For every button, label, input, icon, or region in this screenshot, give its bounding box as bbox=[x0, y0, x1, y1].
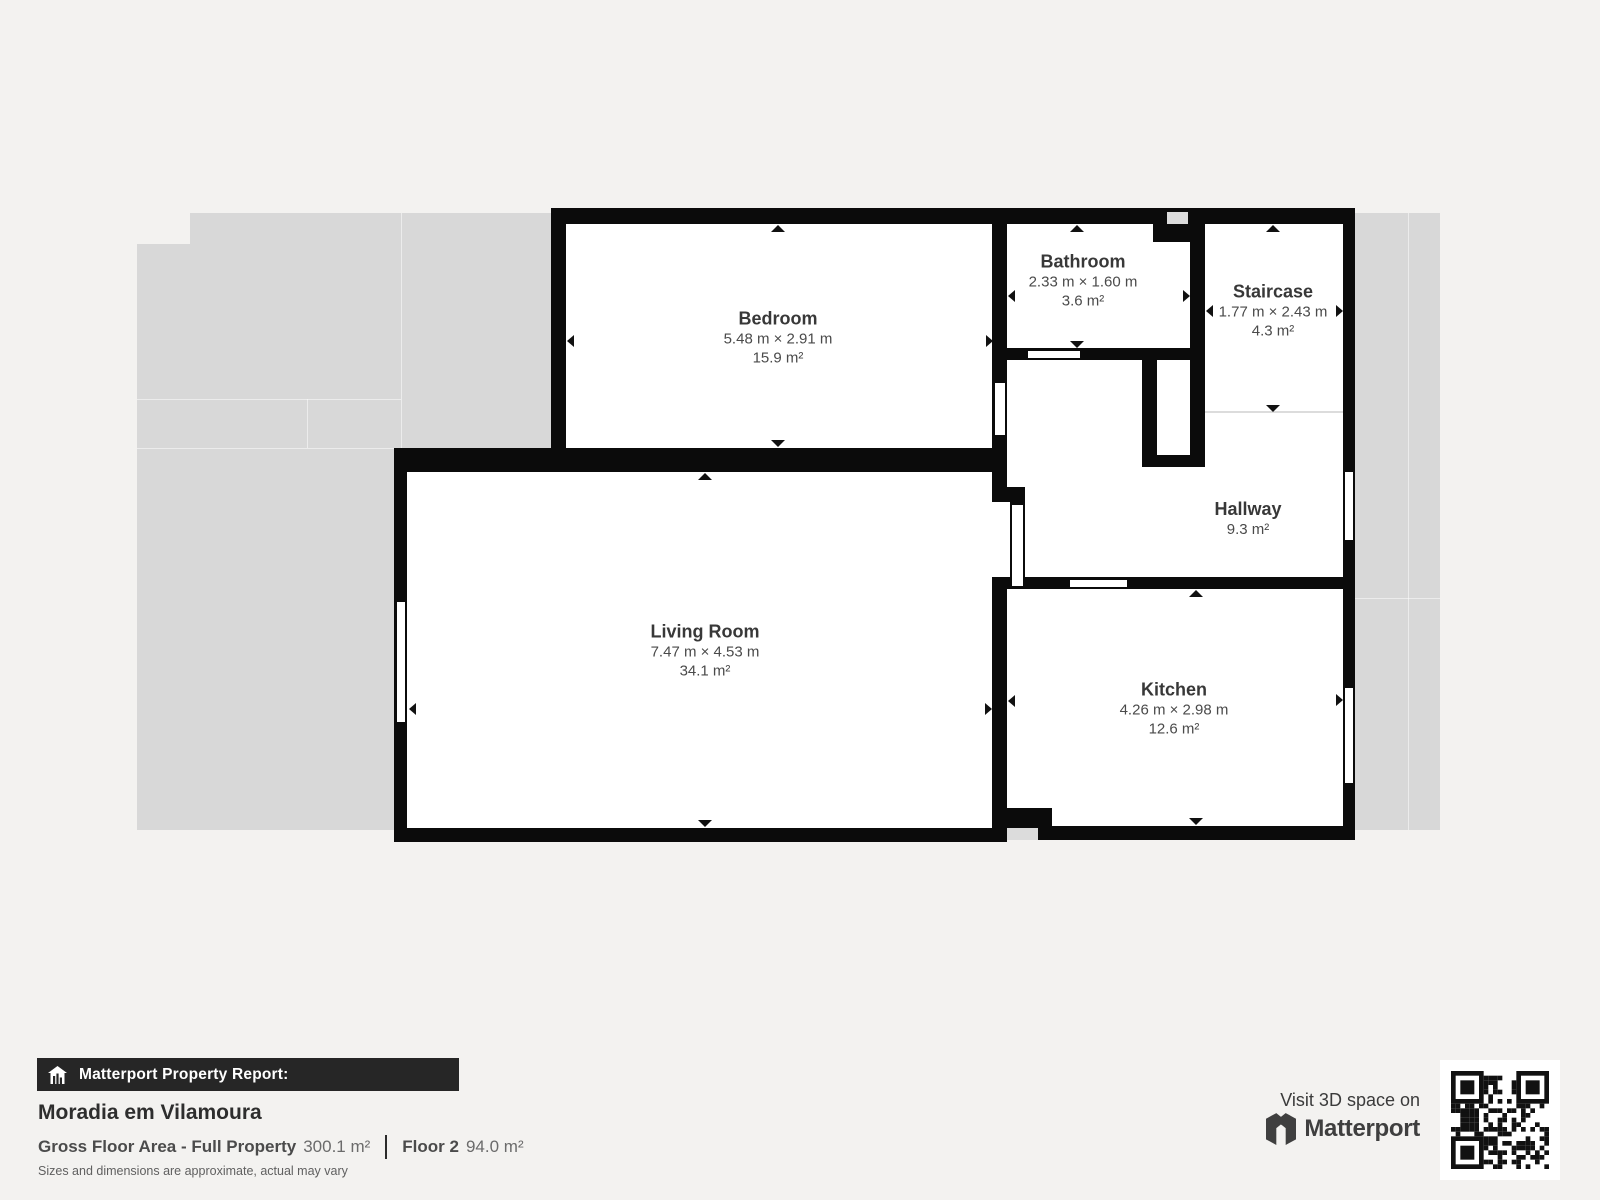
floor-area-value: 94.0 m² bbox=[466, 1137, 524, 1157]
dimension-arrow bbox=[1206, 305, 1213, 317]
wall-segment bbox=[992, 577, 1007, 842]
room-name: Bedroom bbox=[724, 309, 833, 330]
room-name: Living Room bbox=[651, 622, 760, 643]
gross-floor-area-label: Gross Floor Area - Full Property bbox=[38, 1137, 296, 1157]
wall-segment bbox=[992, 577, 1355, 589]
dimension-arrow bbox=[985, 703, 992, 715]
dimension-arrow bbox=[1266, 225, 1280, 232]
floor-plan: Bedroom 5.48 m × 2.91 m 15.9 m² Bathroom… bbox=[0, 0, 1600, 1200]
room-name: Staircase bbox=[1219, 282, 1328, 303]
dimension-arrow bbox=[567, 335, 574, 347]
matterport-brand-link[interactable]: Matterport bbox=[1150, 1112, 1420, 1146]
room-dimensions: 4.26 m × 2.98 m bbox=[1120, 701, 1229, 720]
room-dimensions: 7.47 m × 4.53 m bbox=[651, 643, 760, 662]
dimension-arrow bbox=[1070, 225, 1084, 232]
window-kitchen-right bbox=[1345, 688, 1353, 783]
room-hallway bbox=[1007, 360, 1343, 577]
wall-segment bbox=[992, 348, 1205, 360]
report-bar-label: Matterport Property Report: bbox=[79, 1066, 289, 1084]
dimension-arrow bbox=[409, 703, 416, 715]
room-dimensions: 2.33 m × 1.60 m bbox=[1029, 273, 1138, 292]
room-name: Bathroom bbox=[1029, 252, 1138, 273]
floor-label: Floor 2 bbox=[402, 1137, 459, 1157]
room-label-kitchen: Kitchen 4.26 m × 2.98 m 12.6 m² bbox=[1120, 680, 1229, 739]
room-dimensions: 5.48 m × 2.91 m bbox=[724, 330, 833, 349]
dimension-arrow bbox=[1008, 290, 1015, 302]
wall-segment bbox=[1142, 360, 1157, 467]
room-name: Hallway bbox=[1214, 499, 1281, 520]
window-living-left bbox=[397, 602, 405, 722]
room-label-bathroom: Bathroom 2.33 m × 1.60 m 3.6 m² bbox=[1029, 252, 1138, 311]
wall-segment bbox=[394, 828, 1007, 842]
wall-segment bbox=[1142, 455, 1205, 467]
room-label-hallway: Hallway 9.3 m² bbox=[1214, 499, 1281, 539]
wall-segment bbox=[551, 208, 566, 472]
ghost-line bbox=[1355, 598, 1440, 599]
door-opening-bedroom bbox=[995, 383, 1005, 435]
dimension-arrow bbox=[986, 335, 993, 347]
ghost-line bbox=[137, 448, 401, 449]
matterport-wordmark: Matterport bbox=[1304, 1115, 1420, 1143]
house-report-icon bbox=[48, 1066, 67, 1084]
dimension-arrow bbox=[1183, 290, 1190, 302]
window-hallway-right bbox=[1345, 472, 1353, 540]
wall-segment bbox=[992, 487, 1025, 502]
report-header-bar: Matterport Property Report: bbox=[37, 1058, 459, 1091]
ghost-line bbox=[307, 399, 308, 448]
dimension-arrow bbox=[698, 473, 712, 480]
room-area: 4.3 m² bbox=[1219, 322, 1328, 341]
room-living-alcove bbox=[992, 502, 1010, 577]
property-name: Moradia em Vilamoura bbox=[38, 1101, 262, 1125]
door-opening-bathroom bbox=[1028, 351, 1080, 358]
wall-notch bbox=[1167, 212, 1188, 224]
room-area: 12.6 m² bbox=[1120, 720, 1229, 739]
wall-segment bbox=[394, 448, 1007, 472]
dimension-arrow bbox=[1189, 818, 1203, 825]
divider bbox=[385, 1135, 387, 1159]
room-area: 15.9 m² bbox=[724, 349, 833, 368]
room-label-living-room: Living Room 7.47 m × 4.53 m 34.1 m² bbox=[651, 622, 760, 681]
visit-3d-text: Visit 3D space on bbox=[1190, 1090, 1420, 1111]
wall-segment bbox=[1038, 826, 1355, 840]
dimension-arrow bbox=[1070, 341, 1084, 348]
gross-floor-area-value: 300.1 m² bbox=[303, 1137, 370, 1157]
wall-segment bbox=[551, 208, 1355, 224]
dimension-arrow bbox=[1336, 305, 1343, 317]
room-area: 3.6 m² bbox=[1029, 292, 1138, 311]
ghost-line bbox=[1408, 213, 1409, 830]
qr-code bbox=[1440, 1060, 1560, 1180]
wall-notch bbox=[1007, 828, 1038, 840]
room-label-staircase: Staircase 1.77 m × 2.43 m 4.3 m² bbox=[1219, 282, 1328, 341]
room-name: Kitchen bbox=[1120, 680, 1229, 701]
door-opening-living bbox=[1012, 505, 1023, 586]
wall-segment bbox=[1007, 808, 1052, 828]
plan-backdrop-left bbox=[137, 244, 190, 830]
room-label-bedroom: Bedroom 5.48 m × 2.91 m 15.9 m² bbox=[724, 309, 833, 368]
wall-segment bbox=[1190, 224, 1205, 467]
dimension-arrow bbox=[771, 225, 785, 232]
dimension-arrow bbox=[771, 440, 785, 447]
room-dimensions: 1.77 m × 2.43 m bbox=[1219, 303, 1328, 322]
disclaimer-text: Sizes and dimensions are approximate, ac… bbox=[38, 1164, 348, 1178]
room-area: 34.1 m² bbox=[651, 662, 760, 681]
dimension-arrow bbox=[1266, 405, 1280, 412]
room-area: 9.3 m² bbox=[1214, 520, 1281, 539]
dimension-arrow bbox=[1336, 694, 1343, 706]
dimension-arrow bbox=[1008, 695, 1015, 707]
dimension-arrow bbox=[1189, 590, 1203, 597]
floor-area-summary: Gross Floor Area - Full Property 300.1 m… bbox=[38, 1135, 524, 1159]
dimension-arrow bbox=[698, 820, 712, 827]
door-opening-kitchen bbox=[1070, 580, 1127, 587]
ghost-line bbox=[401, 213, 402, 452]
ghost-line bbox=[137, 399, 401, 400]
matterport-logo-icon bbox=[1266, 1112, 1296, 1146]
